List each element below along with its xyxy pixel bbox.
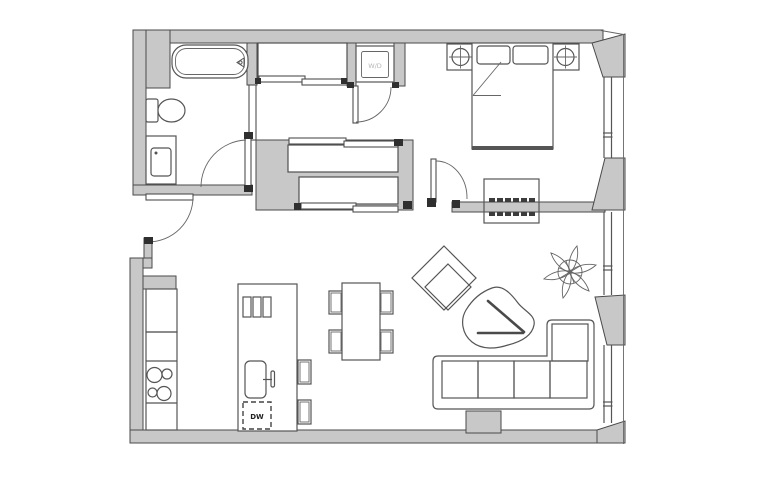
wall-top: [133, 30, 603, 43]
wall-wd-closet-right: [394, 43, 405, 86]
jamb-mark: [347, 82, 354, 88]
jamb-mark: [452, 200, 460, 208]
jamb-mark: [244, 185, 253, 192]
pier-bedroom: [592, 158, 625, 210]
bedroom-door-leaf: [431, 159, 436, 202]
apartment-floor-plan: W/D: [0, 0, 768, 480]
bar-stool: [298, 400, 311, 424]
nightstand-left: [447, 44, 474, 70]
hall-closet: [258, 43, 347, 80]
bar-stool: [298, 360, 311, 384]
jamb-mark: [392, 82, 399, 88]
jamb-mark: [341, 78, 347, 84]
laundry-closet: W/D: [356, 46, 394, 82]
living-room: [412, 245, 597, 409]
dining-area: [329, 283, 393, 360]
jamb-mark: [394, 139, 403, 146]
burner: [148, 388, 157, 397]
floor-plan-page: W/D: [0, 0, 768, 480]
bedroom-door-swing: [436, 161, 467, 199]
bed: [472, 43, 553, 150]
toilet-bowl: [158, 99, 185, 122]
bathroom-door: [201, 132, 253, 192]
island-outline: [238, 284, 297, 431]
bedroom-door: [427, 159, 467, 208]
facade-line-top: [601, 31, 624, 35]
window-wall: [603, 77, 613, 423]
wall-left-upper: [133, 30, 146, 195]
dining-chair: [379, 330, 393, 353]
dining-chair: [329, 291, 343, 314]
wall-column: [466, 411, 501, 433]
burner: [162, 369, 172, 379]
washer-dryer-label: W/D: [368, 62, 382, 70]
burner: [147, 368, 162, 383]
coffee-table-top: [463, 287, 535, 348]
dresser-console: [484, 179, 539, 223]
window-living-lower: [603, 345, 613, 423]
accent-chair-outer: [412, 246, 476, 310]
bathtub: [172, 45, 248, 78]
jamb-mark: [427, 198, 436, 207]
window-living-upper: [603, 212, 613, 295]
dining-chair: [329, 330, 343, 353]
toilet-tank: [146, 99, 158, 122]
refrigerator: [146, 289, 177, 332]
central-closet-south-slider: [353, 206, 398, 212]
dining-table: [342, 283, 380, 360]
kitchen: DW: [146, 284, 311, 431]
sink-faucet-dot: [155, 152, 158, 155]
central-closet-north-slider: [289, 138, 346, 144]
hall-closet-slider-panel: [259, 76, 305, 82]
wall-bottom: [130, 430, 598, 443]
cooktop: [147, 368, 172, 401]
accent-chair-seat: [425, 264, 471, 310]
wall-bedroom-south: [452, 202, 605, 212]
washer-closet-door-swing: [356, 87, 391, 122]
dining-chair: [379, 291, 393, 314]
toilet: [146, 99, 185, 122]
window-bedroom: [603, 77, 613, 158]
central-closet-north: [288, 145, 398, 172]
central-closet-south-slider: [301, 203, 356, 209]
vanity-sink: [146, 136, 176, 184]
jamb-mark: [403, 201, 412, 209]
nightstand-right: [552, 44, 579, 70]
sink-basin: [151, 148, 171, 176]
central-closet-north-slider: [344, 141, 398, 147]
entry-door-swing: [148, 197, 193, 242]
jamb-mark: [144, 237, 153, 244]
jamb-mark: [255, 78, 261, 84]
bathroom-door-swing: [201, 140, 246, 187]
entry-door-leaf: [146, 194, 193, 200]
wall-kitchen-stub: [143, 276, 176, 289]
bed-footboard: [472, 146, 553, 150]
wall-bath-hall-thin: [249, 85, 256, 140]
hall-closet-slider-panel: [302, 79, 347, 85]
washer-closet-door: [347, 82, 399, 123]
burner: [157, 387, 171, 401]
plant: [543, 245, 597, 299]
central-closet-south: [299, 177, 398, 204]
pier-living: [595, 295, 625, 345]
kitchen-island: DW: [238, 284, 297, 431]
bathroom-door-leaf: [245, 138, 251, 187]
jamb-mark: [294, 203, 301, 210]
coffee-table-detail: [488, 301, 524, 332]
wall-left-lower: [130, 258, 143, 443]
dishwasher-label: DW: [250, 413, 264, 421]
pier-bottom-right: [597, 421, 625, 443]
pillow: [477, 46, 510, 64]
coffee-table: [463, 287, 535, 348]
washer-closet-door-leaf: [353, 86, 358, 123]
pillow: [513, 46, 548, 64]
wall-wd-closet-left: [347, 43, 356, 86]
accent-chair: [412, 246, 476, 310]
entry-door: [144, 194, 193, 244]
jamb-mark: [244, 132, 253, 139]
